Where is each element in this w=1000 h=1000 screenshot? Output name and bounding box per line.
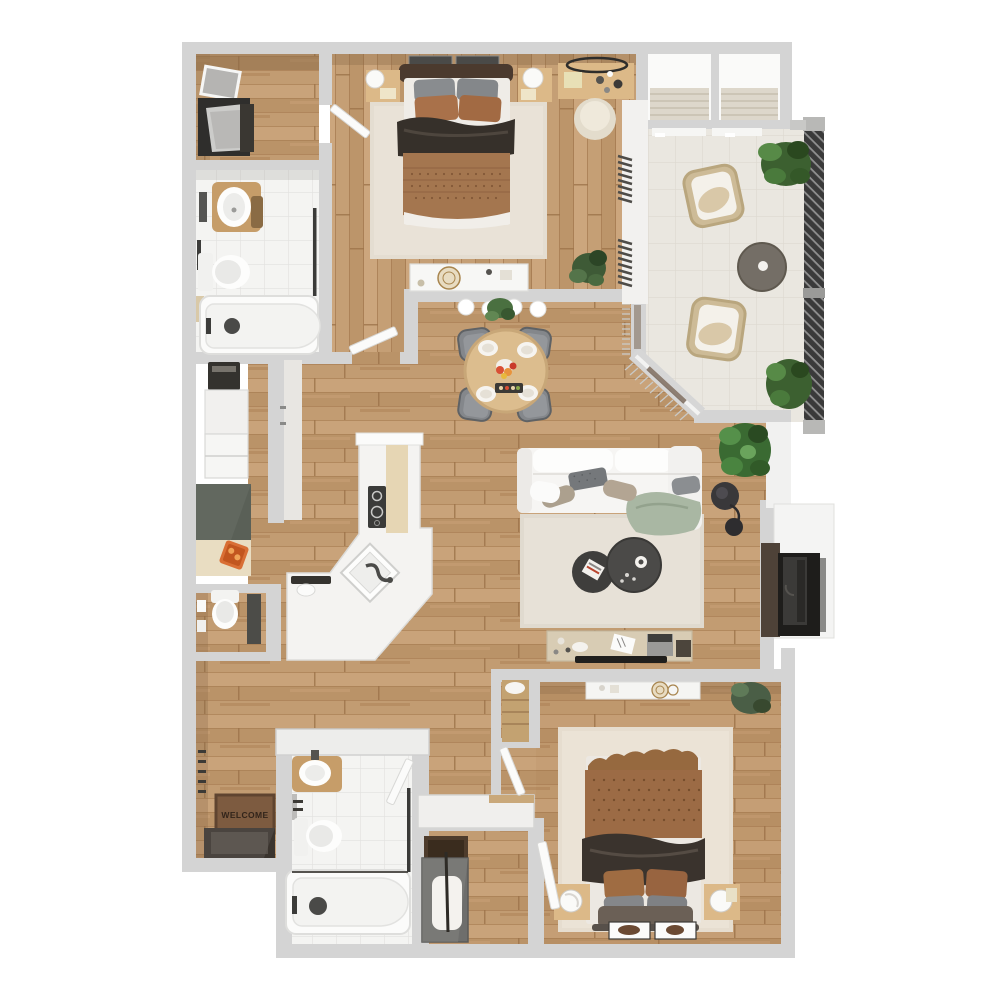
svg-text:WELCOME: WELCOME [221,810,268,820]
